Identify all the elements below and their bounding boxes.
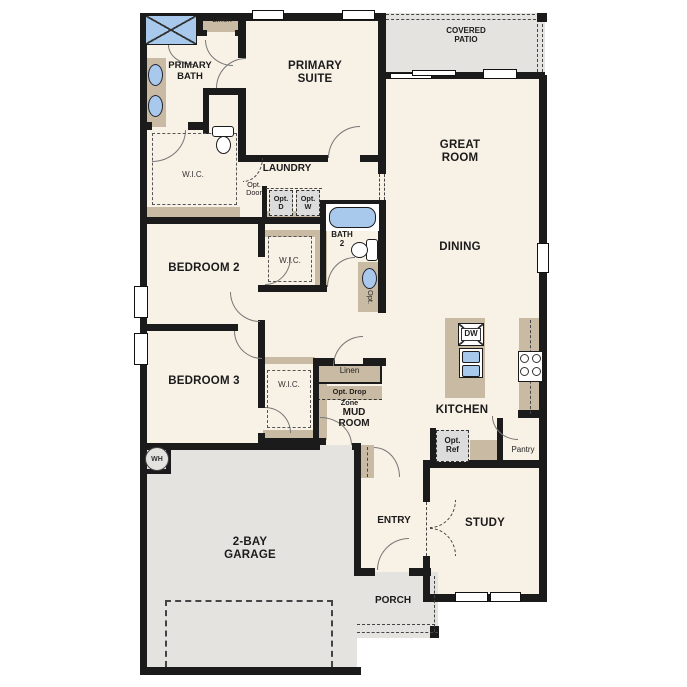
bath2-label: BATH 2 — [323, 231, 361, 249]
wall — [140, 667, 361, 675]
study-label: STUDY — [430, 517, 540, 530]
wall — [197, 30, 207, 36]
bedroom3-wic-shelf — [263, 357, 315, 364]
floor-plan: WH Opt. D Opt. W Opt. Ref COVERED PATIO … — [0, 0, 687, 687]
patio-post — [537, 13, 547, 22]
water-heater: WH — [145, 447, 169, 471]
wall — [203, 88, 209, 134]
opt-dryer-box: Opt. D — [269, 190, 293, 216]
wall — [378, 13, 386, 174]
wall — [140, 324, 238, 331]
dishwasher-label: DW — [461, 330, 481, 339]
opt-ref-box: Opt. Ref — [436, 430, 469, 462]
great-room-label: GREAT ROOM — [426, 139, 494, 165]
study-opening-jamb — [426, 502, 427, 556]
wall — [140, 122, 152, 130]
wall — [363, 358, 386, 366]
wall — [140, 365, 147, 675]
stove-burner — [520, 354, 529, 363]
patio-dashed-edge — [386, 19, 541, 20]
label-line: GREAT — [426, 139, 494, 152]
bedroom3-wic-label: W.I.C. — [265, 381, 313, 390]
label-line: 2 — [323, 240, 361, 249]
water-heater-label: WH — [151, 456, 163, 463]
wall — [140, 13, 147, 286]
label-line: 2-BAY — [196, 536, 304, 549]
window — [342, 10, 375, 20]
opt-bath2-sink-label: Opt. — [366, 285, 374, 309]
wall — [140, 217, 326, 224]
label-line: ROOM — [323, 418, 385, 429]
label-line: BATH — [156, 72, 224, 83]
window — [252, 10, 284, 20]
linen-hall-label: Linen — [199, 16, 245, 25]
kitchen-sink-basin — [462, 365, 480, 377]
wall — [378, 200, 386, 313]
mud-room-label: MUD ROOM — [323, 407, 385, 429]
wall — [258, 217, 265, 257]
porch-dashed-edge — [357, 624, 435, 625]
kitchen-counter-south — [470, 440, 500, 462]
primary-wic-label: W.I.C. — [166, 171, 220, 180]
label-line: GARAGE — [196, 549, 304, 562]
opt-door-label: Opt. Door — [240, 181, 268, 197]
cased-opening — [379, 174, 380, 200]
label-line: Ref — [446, 446, 459, 455]
wall — [235, 30, 245, 36]
patio-dashed-edge — [542, 19, 543, 72]
stove-burner — [520, 367, 529, 376]
kitchen-sink-basin — [462, 351, 480, 363]
label-line: D — [278, 203, 283, 211]
wall — [355, 568, 375, 576]
porch-dashed-edge — [434, 576, 435, 632]
label-line: ROOM — [426, 152, 494, 165]
bathroom-sink — [148, 95, 163, 117]
bedroom2-label: BEDROOM 2 — [150, 262, 258, 275]
window — [490, 592, 521, 602]
bedroom2-wic-label: W.I.C. — [266, 257, 314, 266]
laundry-closet-opening — [266, 188, 322, 189]
dining-label: DINING — [424, 241, 496, 254]
wall — [539, 75, 547, 243]
label-line: MUD — [323, 407, 385, 418]
label-line: PATIO — [418, 36, 514, 45]
toilet — [216, 136, 231, 154]
wall — [238, 88, 246, 162]
wall — [313, 358, 335, 366]
entry-label: ENTRY — [364, 515, 424, 526]
bedroom3-label: BEDROOM 3 — [150, 375, 258, 388]
sliding-door — [412, 70, 456, 76]
primary-wic-shelf — [147, 207, 240, 217]
wall — [188, 122, 204, 130]
pantry-label: Pantry — [501, 446, 545, 455]
wall — [258, 285, 327, 292]
garage-label: 2-BAY GARAGE — [196, 536, 304, 562]
label-line: W — [305, 203, 312, 211]
shower — [145, 15, 197, 45]
patio-door — [483, 69, 517, 79]
window — [455, 592, 488, 602]
cased-opening — [384, 174, 385, 200]
covered-patio-label: COVERED PATIO — [418, 27, 514, 45]
kitchen-label: KITCHEN — [426, 404, 498, 417]
patio-dashed-edge — [386, 14, 545, 15]
linen-mud-label: Linen — [317, 367, 382, 376]
porch-dashed-edge — [357, 632, 438, 633]
patio-dashed-edge — [537, 19, 538, 72]
window — [134, 286, 148, 318]
wall — [539, 273, 547, 602]
window — [134, 333, 148, 365]
laundry-label: LAUNDRY — [254, 163, 320, 174]
opt-drop-zone-label2: Zone — [317, 399, 382, 407]
garage-door-outline — [165, 600, 333, 667]
wall — [354, 443, 361, 576]
bedroom3-wic-shelving — [267, 370, 311, 428]
stove-burner — [532, 354, 541, 363]
primary-bath-label: PRIMARY BATH — [156, 61, 224, 82]
wall — [203, 88, 246, 95]
window — [537, 243, 549, 273]
closet-centerline — [367, 447, 368, 477]
label-line: SUITE — [270, 73, 360, 86]
bathtub — [329, 207, 376, 228]
label-line: Door — [240, 189, 268, 197]
opt-washer-box: Opt. W — [296, 190, 320, 216]
wall — [518, 410, 547, 418]
opt-drop-zone-label: Opt. Drop — [317, 388, 382, 396]
label-line: PRIMARY — [270, 60, 360, 73]
stove-burner — [532, 367, 541, 376]
primary-suite-label: PRIMARY SUITE — [270, 60, 360, 86]
porch-label: PORCH — [362, 595, 424, 606]
